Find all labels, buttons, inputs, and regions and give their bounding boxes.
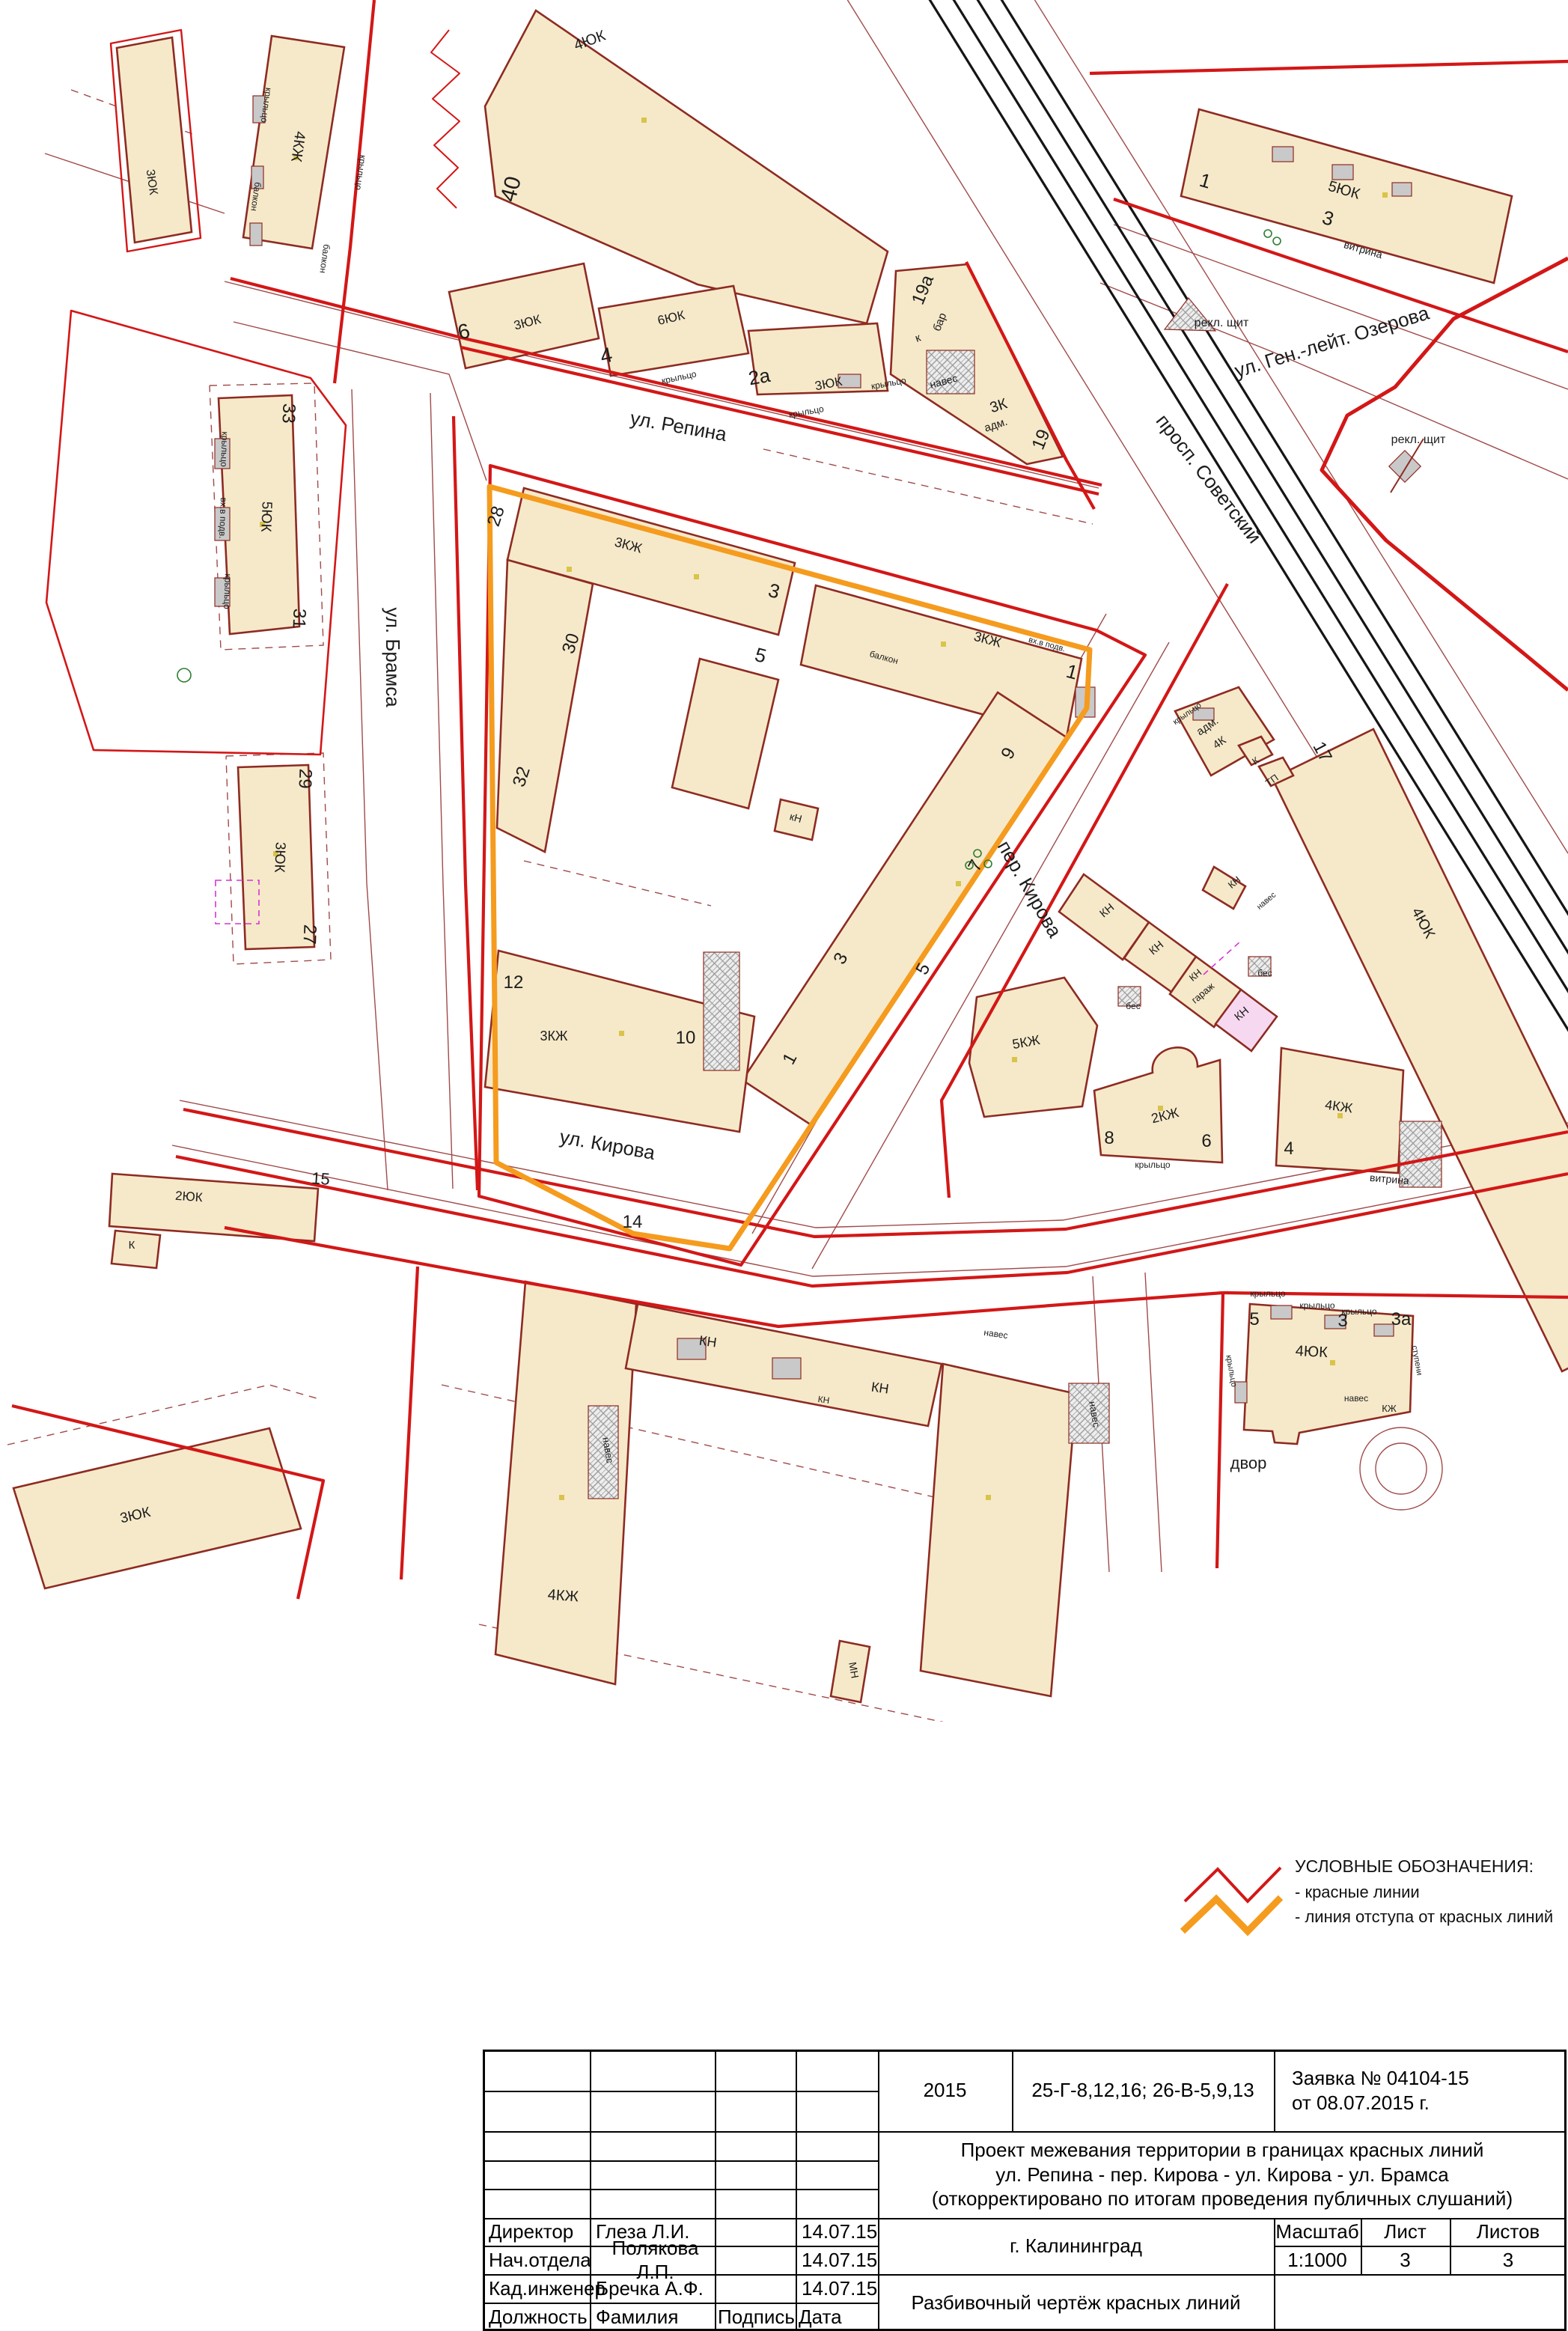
map-label: крыльцо [1299,1300,1335,1311]
building [1272,729,1568,1371]
map-label: крыльцо [661,368,698,386]
map-label: 3а [1391,1309,1412,1329]
sheets-label-cell: Листов [1450,2218,1567,2246]
map-label: навес [983,1327,1009,1341]
city-cell: г. Калининград [878,2218,1274,2274]
map-label: крыльцо [1341,1306,1377,1317]
map-label: крыльцо [1250,1288,1286,1299]
map-label: витрина [1369,1171,1409,1187]
map-label: КЖ [1382,1403,1397,1414]
street-label-sovetsky: просп. Советский [1152,410,1266,548]
map-label: КН [870,1380,890,1397]
map-label: 33 [278,403,299,424]
map-label: К [129,1239,135,1252]
building [1203,867,1245,909]
street-label-kirova: ул. Кирова [558,1125,657,1164]
building [112,1231,160,1268]
titleblock-line [483,2189,878,2190]
footer-role: Должность [483,2303,590,2331]
map-label: 14 [623,1212,643,1232]
map-label: навес [1344,1393,1368,1404]
role-director: Директор [483,2218,590,2246]
map-label: 2а [747,364,772,390]
map-label: 5ЮК [257,501,274,532]
building [921,1364,1076,1696]
footer-sign: Подпись [715,2303,796,2331]
date-engineer: 14.07.15 [796,2274,878,2303]
street-label-repina: ул. Репина [629,406,729,445]
legend-item-red-lines: - красные линии [1295,1883,1420,1902]
map-label: крыльцо [222,573,234,609]
map-label: 4 [1284,1139,1293,1159]
map-label: КН [817,1394,830,1406]
legend-orange-line [1183,1898,1281,1931]
map-label: крыльцо [1224,1354,1238,1388]
legend-title: УСЛОВНЫЕ ОБОЗНАЧЕНИЯ: [1295,1856,1534,1877]
billboard-marker [1389,451,1421,482]
map-label: рекл. щит [1391,433,1446,446]
date-director: 14.07.15 [796,2218,878,2246]
role-engineer: Кад.инженер [483,2274,590,2303]
map-label: 5 [752,643,769,668]
map-label: 6 [1201,1131,1211,1151]
street-label-bramsa: ул. Брамса [382,607,404,707]
map-label: навес [1255,890,1278,911]
yard-label: двор [1230,1454,1267,1472]
role-head: Нач.отдела [483,2246,590,2274]
map-label: 31 [289,608,310,629]
building [117,37,192,243]
scale-value-cell: 1:1000 [1274,2246,1361,2274]
map-label: 5 [912,960,934,978]
map-label: балкон [317,243,332,274]
legend-red-line [1185,1868,1281,1901]
map-label: 8 [1104,1128,1114,1148]
map-label: КН [698,1333,718,1350]
map-label: 4КЖ [547,1587,579,1606]
drawing-title-cell: Разбивочный чертёж красных линий [878,2274,1274,2331]
building [13,1428,301,1588]
map-label: крыльцо [1135,1160,1171,1170]
footer-name: Фамилия [590,2303,715,2331]
drawing-sheet: ул. Репинаул. Брамсапер. Кироваул. Киров… [0,0,1568,2331]
sheet-code-cell: 25-Г-8,12,16; 26-В-5,9,13 [1012,2050,1274,2131]
name-engineer: Бречка А.Ф. [590,2274,715,2303]
sheet-value-cell: 3 [1361,2246,1450,2274]
map-label: бес [1126,1001,1140,1011]
street-label-ozerova: ул. Ген.-лейт. Озерова [1232,301,1432,382]
legend-item-offset-line: - линия отступа от красных линий [1295,1907,1553,1927]
titleblock-line [483,2091,878,2092]
sheet-label-cell: Лист [1361,2218,1450,2246]
map-label: 5 [1249,1309,1259,1329]
map-label: 3ЮК [271,841,287,873]
map-label: крыльцо [219,431,231,467]
project-line2: ул. Репина - пер. Кирова - ул. Кирова - … [995,2163,1448,2187]
map-label: 10 [676,1028,696,1048]
map-label: бес [1257,968,1272,978]
map-label: рекл. щит [1195,317,1249,329]
footer-date: Дата [796,2303,878,2331]
map-label: 4ЮК [1295,1343,1328,1361]
legend-symbols [1171,1845,1306,1950]
buildings-layer [13,10,1568,1702]
map-label: 3КЖ [540,1029,567,1043]
map-label: 2ЮК [174,1189,203,1205]
request-cell: Заявка № 04104-15 от 08.07.2015 г. [1274,2050,1567,2131]
building [672,659,778,808]
map-label: 29 [295,768,316,789]
year-cell: 2015 [878,2050,1012,2131]
date-head: 14.07.15 [796,2246,878,2274]
map-label: 27 [299,924,320,945]
titleblock-line [483,2160,878,2162]
sheets-value-cell: 3 [1450,2246,1567,2274]
street-label-per-kirova: пер. Кирова [993,837,1067,942]
map-label: вх.в подв. [217,497,229,539]
project-line3: (откорректировано по итогам проведения п… [932,2187,1513,2211]
titleblock-line [715,2050,716,2331]
request-line2: от 08.07.2015 г. [1292,2091,1430,2115]
request-line1: Заявка № 04104-15 [1292,2066,1469,2091]
building [497,560,593,852]
map-label: 12 [504,972,524,993]
scale-label-cell: Масштаб [1274,2218,1361,2246]
project-title-cell: Проект межевания территории в границах к… [878,2131,1567,2218]
title-block: 2015 25-Г-8,12,16; 26-В-5,9,13 Заявка № … [483,2050,1567,2331]
name-head: Полякова Л.П. [590,2246,715,2274]
building [109,1174,318,1241]
map-canvas: ул. Репинаул. Брамсапер. Кироваул. Киров… [0,0,1568,1722]
map-label: крыльцо [353,154,368,191]
map-label: 15 [311,1168,330,1189]
building [599,286,748,376]
project-line1: Проект межевания территории в границах к… [961,2138,1484,2163]
